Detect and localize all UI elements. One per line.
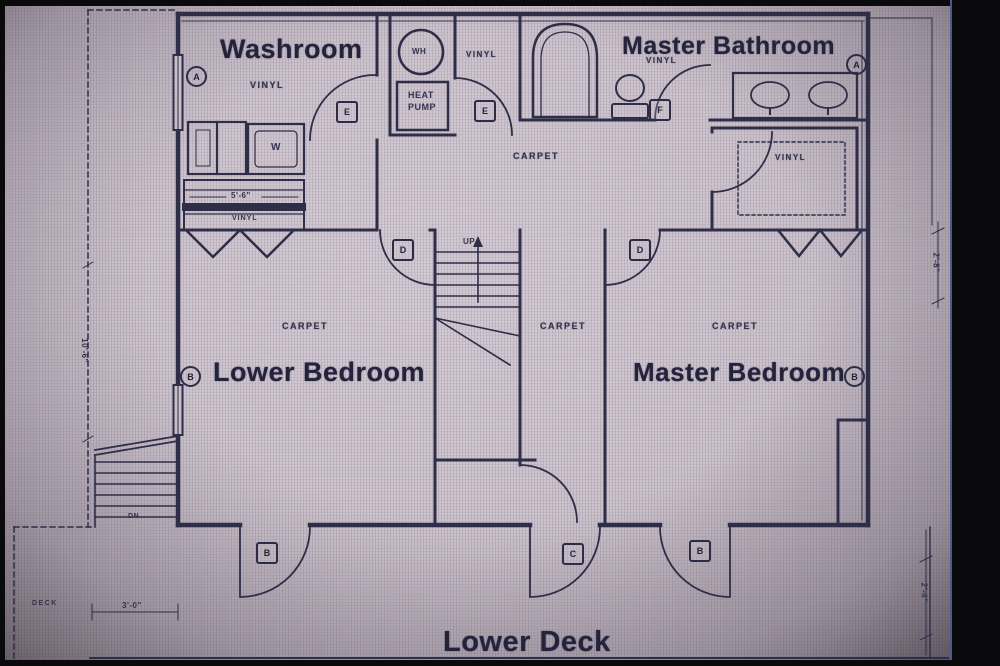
water-heater-label: WH xyxy=(412,47,426,56)
cabinet-dimension: 5'-6" xyxy=(231,191,251,200)
dimension-right-upper: 2'-8" xyxy=(931,253,940,273)
interior-walls xyxy=(178,14,868,525)
bifold-doors xyxy=(186,230,862,257)
master-bedroom-title: Master Bedroom xyxy=(633,357,845,388)
photo-black-border-left xyxy=(0,0,5,666)
utility-floor-label: VINYL xyxy=(466,50,497,59)
door-tag-master-bedroom: D xyxy=(629,239,651,261)
door-tag-deck-center: C xyxy=(562,543,584,565)
laundry-sink xyxy=(188,122,246,174)
photo-black-border-top xyxy=(0,0,1000,6)
cabinet-shelves xyxy=(184,180,304,230)
door-tag-master-bath: F xyxy=(649,99,671,121)
exterior-walls xyxy=(178,14,868,525)
door-tag-deck-right: B xyxy=(689,540,711,562)
window-tag-lower-bedroom: B xyxy=(180,366,201,387)
property-dashed-lines xyxy=(14,10,178,658)
corridor-floor-label: CARPET xyxy=(540,321,586,331)
heat-pump-label-line2: PUMP xyxy=(408,102,436,112)
master-bathroom-floor-label: VINYL xyxy=(646,56,677,65)
lower-deck-title: Lower Deck xyxy=(443,626,611,659)
master-bedroom-floor-label: CARPET xyxy=(712,321,758,331)
lower-bedroom-title: Lower Bedroom xyxy=(213,357,425,388)
window-tag-master-bathroom: A xyxy=(846,54,867,75)
stairs-down-label: DN xyxy=(128,513,139,520)
door-tag-deck-left: B xyxy=(256,542,278,564)
washroom-title: Washroom xyxy=(220,34,363,65)
exterior-wall-inner-face xyxy=(182,21,864,520)
door-tag-utility: E xyxy=(474,100,496,122)
photo-black-border-bottom xyxy=(0,660,1000,666)
lower-bedroom-floor-label: CARPET xyxy=(282,321,328,331)
side-deck-label: DECK xyxy=(32,600,58,607)
stairs-up xyxy=(435,244,520,365)
door-tag-washroom: E xyxy=(336,101,358,123)
double-vanity xyxy=(733,73,857,118)
dimension-left-height: 10'-6" xyxy=(80,338,89,363)
floorplan-linework xyxy=(0,0,1000,666)
toilet xyxy=(612,75,648,118)
window-tag-master-bedroom: B xyxy=(844,366,865,387)
washer-label: W xyxy=(271,142,281,153)
stairs-up-label: UP xyxy=(463,237,475,246)
floorplan-photo: Washroom Master Bathroom Lower Bedroom M… xyxy=(0,0,1000,666)
window-tag-washroom: A xyxy=(186,66,207,87)
dimension-lines xyxy=(83,222,944,655)
dimension-deck-stairs: 3'-0" xyxy=(122,601,142,610)
photo-black-border-right xyxy=(950,0,1000,666)
walkin-closet-floor-label: VINYL xyxy=(775,153,806,162)
dimension-right-lower: 2'-4" xyxy=(919,583,928,603)
bathtub xyxy=(533,24,597,117)
hall-floor-label: CARPET xyxy=(513,151,559,161)
cabinet-floor-label: VINYL xyxy=(232,215,258,222)
door-tag-lower-bedroom: D xyxy=(392,239,414,261)
heat-pump-label-line1: HEAT xyxy=(408,90,434,100)
washroom-floor-label: VINYL xyxy=(250,80,284,90)
door-swings xyxy=(240,65,772,597)
